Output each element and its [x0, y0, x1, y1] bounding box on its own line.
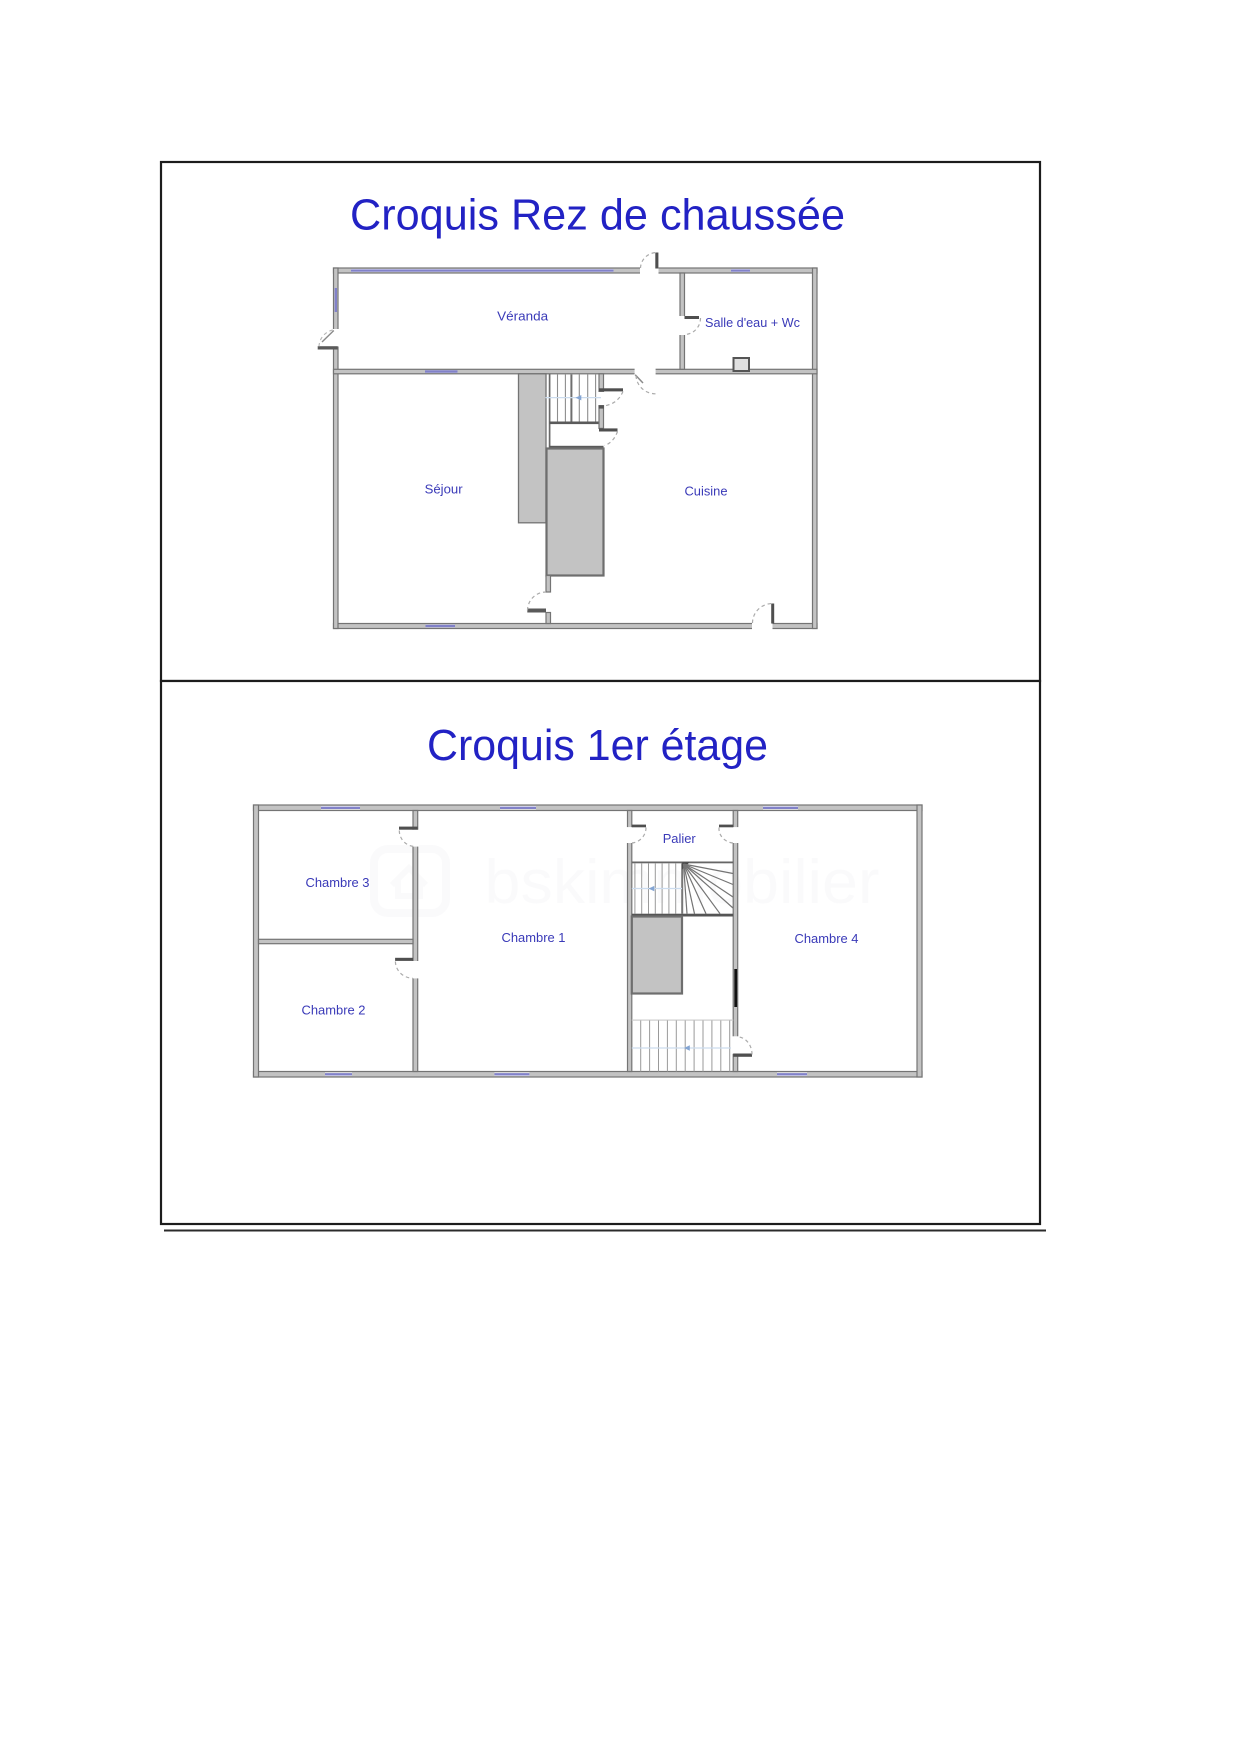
svg-text:Palier: Palier — [663, 831, 697, 846]
svg-text:Cuisine: Cuisine — [685, 484, 728, 499]
svg-text:Véranda: Véranda — [497, 309, 549, 324]
svg-text:Séjour: Séjour — [425, 482, 464, 497]
svg-text:Chambre 1: Chambre 1 — [502, 930, 566, 945]
svg-text:Chambre 3: Chambre 3 — [306, 875, 370, 890]
svg-text:Chambre 2: Chambre 2 — [302, 1003, 366, 1018]
svg-text:Croquis Rez de chaussée: Croquis Rez de chaussée — [350, 191, 845, 240]
svg-text:Croquis 1er étage: Croquis 1er étage — [427, 721, 768, 770]
svg-text:Salle d'eau + Wc: Salle d'eau + Wc — [705, 315, 800, 330]
svg-text:Chambre 4: Chambre 4 — [795, 931, 859, 946]
